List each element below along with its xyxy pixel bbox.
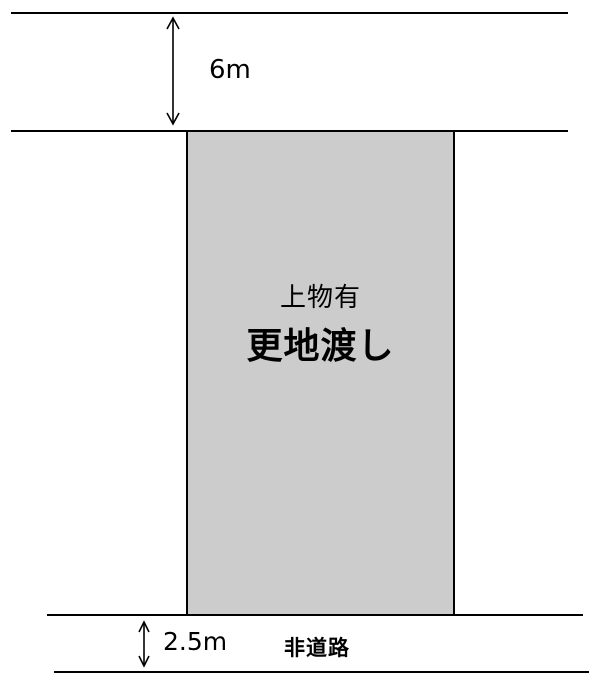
bottom-road-width-label: 2.5m xyxy=(163,627,227,656)
parcel-rect: 上物有 更地渡し xyxy=(186,130,455,616)
top-road-upper-boundary-line xyxy=(11,12,568,14)
top-dimension-arrow-icon xyxy=(162,16,184,126)
land-parcel-diagram: 6m 上物有 更地渡し 2.5m 非道路 xyxy=(0,0,600,684)
top-road-width-label: 6m xyxy=(209,55,251,85)
bottom-road-upper-boundary-line xyxy=(47,614,583,616)
parcel-structure-note-label: 上物有 xyxy=(280,284,361,313)
parcel-delivery-label: 更地渡し xyxy=(246,327,394,367)
non-road-label: 非道路 xyxy=(284,632,350,662)
bottom-road-lower-boundary-line xyxy=(54,671,589,673)
bottom-dimension-arrow-icon xyxy=(133,620,155,668)
